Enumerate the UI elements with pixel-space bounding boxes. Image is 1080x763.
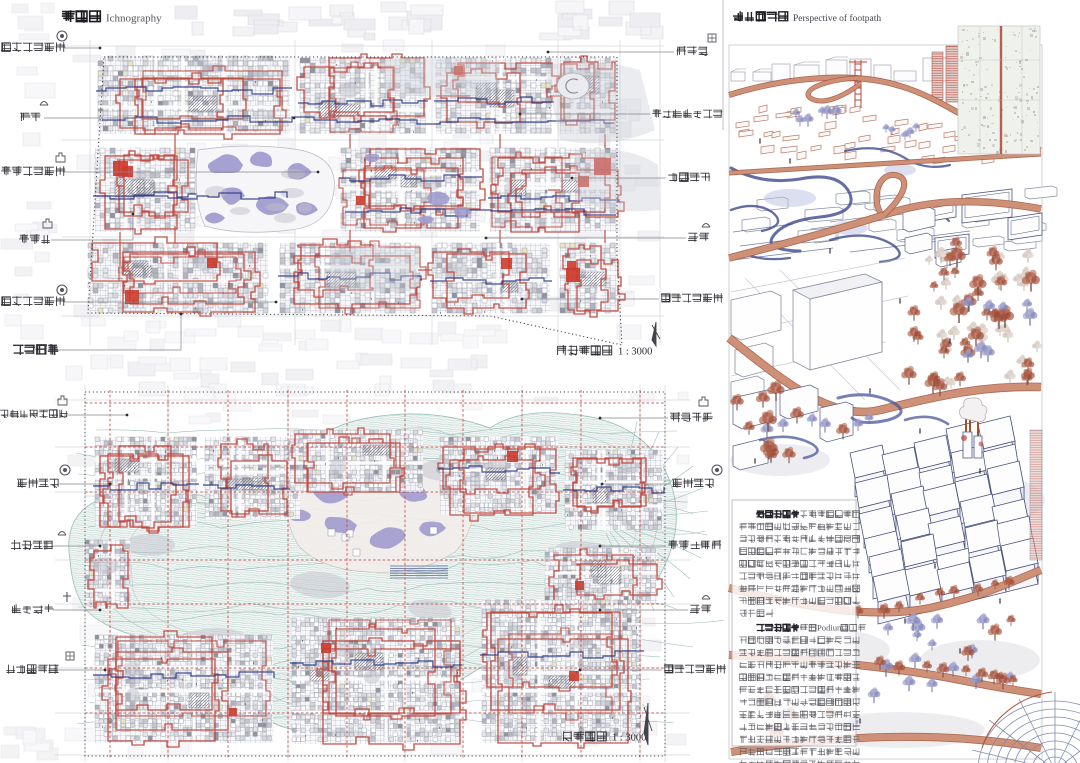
- svg-text:1 : 3000: 1 : 3000: [618, 347, 652, 358]
- svg-text:Perspective of footpath: Perspective of footpath: [793, 13, 881, 24]
- svg-text:1 : 3000: 1 : 3000: [612, 733, 646, 744]
- svg-text:Podium: Podium: [817, 622, 844, 632]
- svg-text:Ichnography: Ichnography: [106, 13, 162, 25]
